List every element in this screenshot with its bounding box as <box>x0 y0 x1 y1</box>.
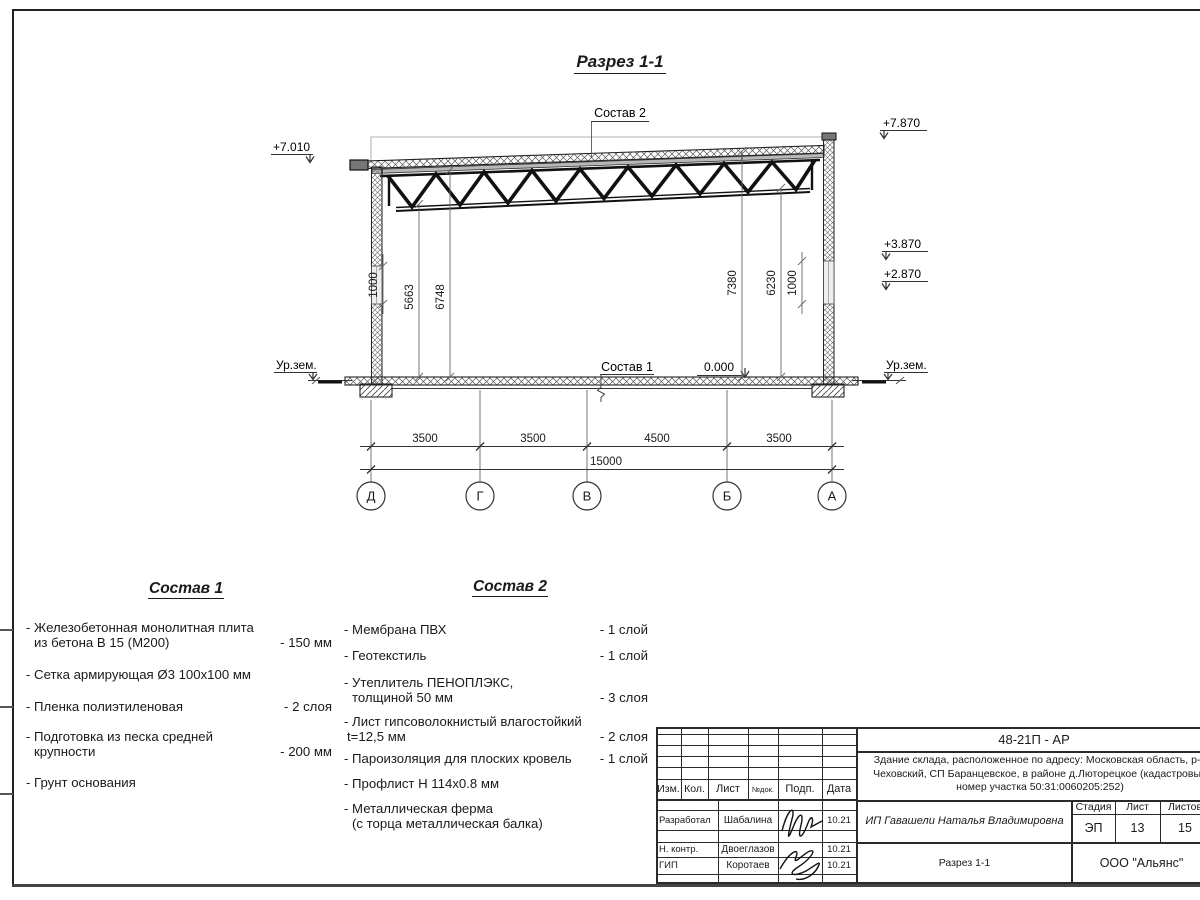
svg-text:0.000: 0.000 <box>704 360 734 374</box>
elevation-right-mid: +3.870 <box>882 237 928 260</box>
parapet-cap <box>822 133 836 140</box>
signatures <box>774 801 834 883</box>
svg-text:Ур.зем.: Ур.зем. <box>276 358 317 372</box>
list-item: - Мембрана ПВХ - 1 слой <box>344 622 648 637</box>
axis-label: Д <box>367 489 376 504</box>
list-item: - Сетка армирующая Ø3 100х100 мм <box>26 667 332 682</box>
drawing-sheet: { "drawing": { "section_title": "Разрез … <box>0 0 1200 900</box>
title-block: Изм. Кол. Лист №док. Подп. Дата Разработ… <box>656 727 1200 884</box>
row-role: Разработал <box>657 810 719 830</box>
axis-label: Б <box>723 489 732 504</box>
comp1-callout: Состав 1 <box>600 360 654 375</box>
elevation-ground-left: Ур.зем. <box>274 358 317 380</box>
signature-2 <box>780 851 819 880</box>
project-description: Здание склада, расположенное по адресу: … <box>860 754 1200 795</box>
sheets-total: 15 <box>1160 814 1200 842</box>
svg-text:5663: 5663 <box>404 284 416 310</box>
list-item: - Профлист Н 114х0.8 мм <box>344 776 648 791</box>
stage-value: ЭП <box>1072 814 1115 842</box>
svg-text:+7.870: +7.870 <box>883 116 920 130</box>
right-wall <box>824 134 835 384</box>
signature-1 <box>782 810 822 836</box>
col-data: Дата <box>822 779 856 799</box>
svg-text:3500: 3500 <box>766 433 792 445</box>
sheets-label: Листов <box>1160 800 1200 814</box>
elevation-zero: 0.000 <box>697 360 749 378</box>
row-name: Коротаев <box>718 857 778 874</box>
axis-label: В <box>583 489 592 504</box>
svg-text:1000: 1000 <box>787 270 799 296</box>
comp1-label: Состав 1 <box>601 360 653 374</box>
client-name: ИП Гавашели Наталья Владимировна <box>858 800 1071 842</box>
row-name: Двоеглазов <box>718 842 778 857</box>
comp2-label: Состав 2 <box>594 106 646 120</box>
company-name: ООО "Альянс" <box>1073 842 1200 884</box>
section-drawing: Состав 2 Состав 1 0.000 +7.010 Ур.зем. +… <box>0 0 1200 560</box>
row-role: Н. контр. <box>657 842 719 857</box>
svg-text:6230: 6230 <box>766 270 778 296</box>
svg-text:+2.870: +2.870 <box>884 267 921 281</box>
list-item: - Утеплитель ПЕНОПЛЭКС,толщиной 50 мм - … <box>344 675 648 705</box>
svg-text:7380: 7380 <box>727 270 739 296</box>
frame-bottom-border <box>12 884 1200 887</box>
svg-text:1000: 1000 <box>368 272 380 298</box>
axis-label: Г <box>476 489 483 504</box>
col-kol: Кол. <box>681 779 708 799</box>
elevation-right-top: +7.870 <box>880 116 927 139</box>
list-item: - Металлическая ферма(с торца металличес… <box>344 801 648 831</box>
stage-label: Стадия <box>1072 800 1115 814</box>
list-item: - Пароизоляция для плоских кровель - 1 с… <box>344 751 648 766</box>
roof-left-end-cap <box>350 160 368 170</box>
svg-text:3500: 3500 <box>520 433 546 445</box>
axis-dimensions: 3500 3500 4500 3500 15000 <box>360 390 844 482</box>
floor-slab <box>308 374 906 402</box>
elevation-ground-right: Ур.зем. <box>884 358 928 380</box>
row-role: ГИП <box>657 857 719 874</box>
comp2-title: Состав 2 <box>465 578 555 596</box>
list-item: - Лист гипсоволокнистый влагостойкийt=12… <box>344 714 648 744</box>
comp2-callout: Состав 2 <box>591 106 649 158</box>
axis-bubbles: Д Г В Б А <box>357 482 846 510</box>
fold-mark <box>0 629 13 631</box>
sheet-number: 13 <box>1115 814 1160 842</box>
left-foundation <box>360 384 392 397</box>
svg-text:4500: 4500 <box>644 433 670 445</box>
right-foundation <box>812 384 844 397</box>
col-izm: Изм. <box>656 779 681 799</box>
svg-text:+7.010: +7.010 <box>273 140 310 154</box>
svg-text:+3.870: +3.870 <box>884 237 921 251</box>
axis-label: А <box>828 489 837 504</box>
svg-text:6748: 6748 <box>435 284 447 310</box>
sheet-name: Разрез 1-1 <box>858 842 1071 884</box>
col-podp: Подп. <box>778 779 822 799</box>
svg-text:Ур.зем.: Ур.зем. <box>886 358 927 372</box>
doc-code: 48-21П - АР <box>858 727 1200 751</box>
comp1-title: Состав 1 <box>141 580 231 598</box>
list-item: - Геотекстиль - 1 слой <box>344 648 648 663</box>
col-ndok: №док. <box>748 779 778 799</box>
fold-mark <box>0 706 13 708</box>
fold-mark <box>0 793 13 795</box>
row-name: Шабалина <box>718 810 778 830</box>
col-list: Лист <box>708 779 748 799</box>
sheet-label: Лист <box>1115 800 1160 814</box>
elevation-right-low: +2.870 <box>882 267 928 290</box>
svg-text:3500: 3500 <box>412 433 438 445</box>
list-item: - Железобетонная монолитная плитаиз бето… <box>26 620 332 650</box>
list-item: - Пленка полиэтиленовая - 2 слоя <box>26 699 332 714</box>
list-item: - Подготовка из песка среднейкрупности -… <box>26 729 332 759</box>
svg-text:15000: 15000 <box>590 456 622 468</box>
list-item: - Грунт основания <box>26 775 332 790</box>
elevation-left-top: +7.010 <box>271 140 314 163</box>
